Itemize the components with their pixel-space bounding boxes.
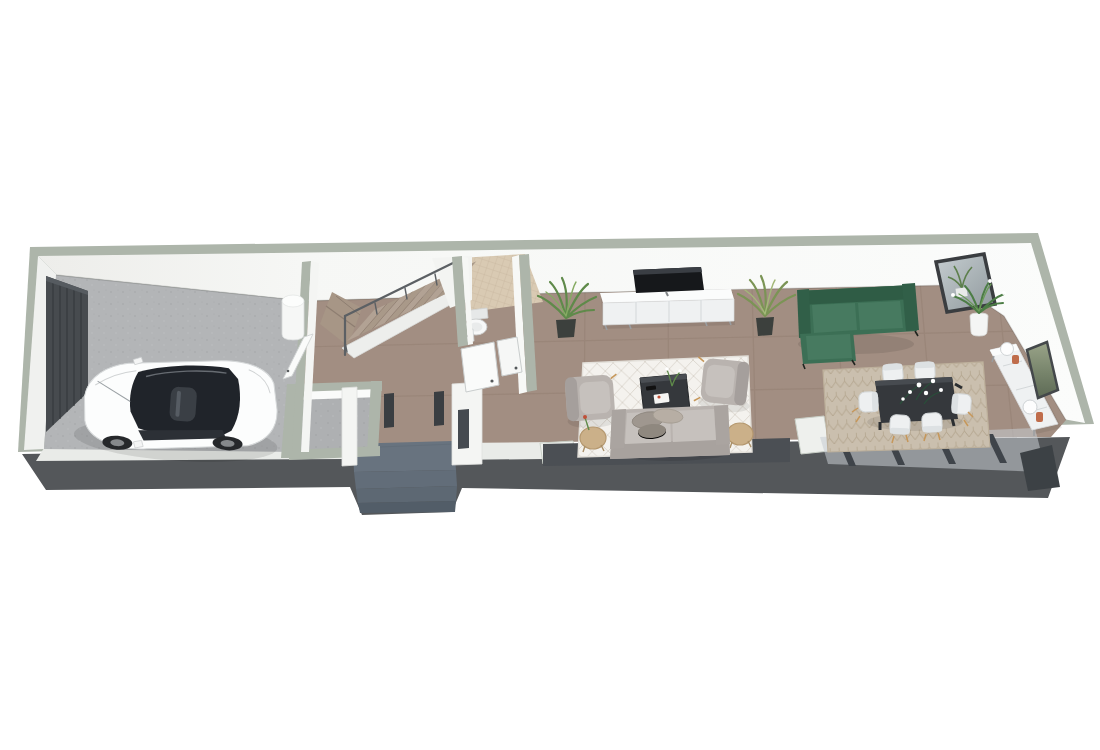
closet-door-open — [497, 337, 522, 376]
dining-table — [867, 377, 963, 431]
gray-sofa — [610, 405, 730, 461]
porch-step-1 — [354, 470, 457, 489]
entry-side-window-slot — [458, 409, 469, 449]
floor-plan-canvas — [0, 0, 1100, 750]
water-heater — [282, 295, 304, 340]
front-door-jamb-right — [434, 391, 444, 426]
front-door-jamb-left — [384, 393, 394, 428]
wc-door-open — [461, 342, 499, 392]
porch-left-wall — [342, 387, 357, 466]
leaning-mirror — [936, 254, 995, 312]
porch-step-3 — [358, 501, 456, 513]
side-table-right — [727, 423, 753, 448]
floor-plan-page — [0, 0, 1100, 750]
